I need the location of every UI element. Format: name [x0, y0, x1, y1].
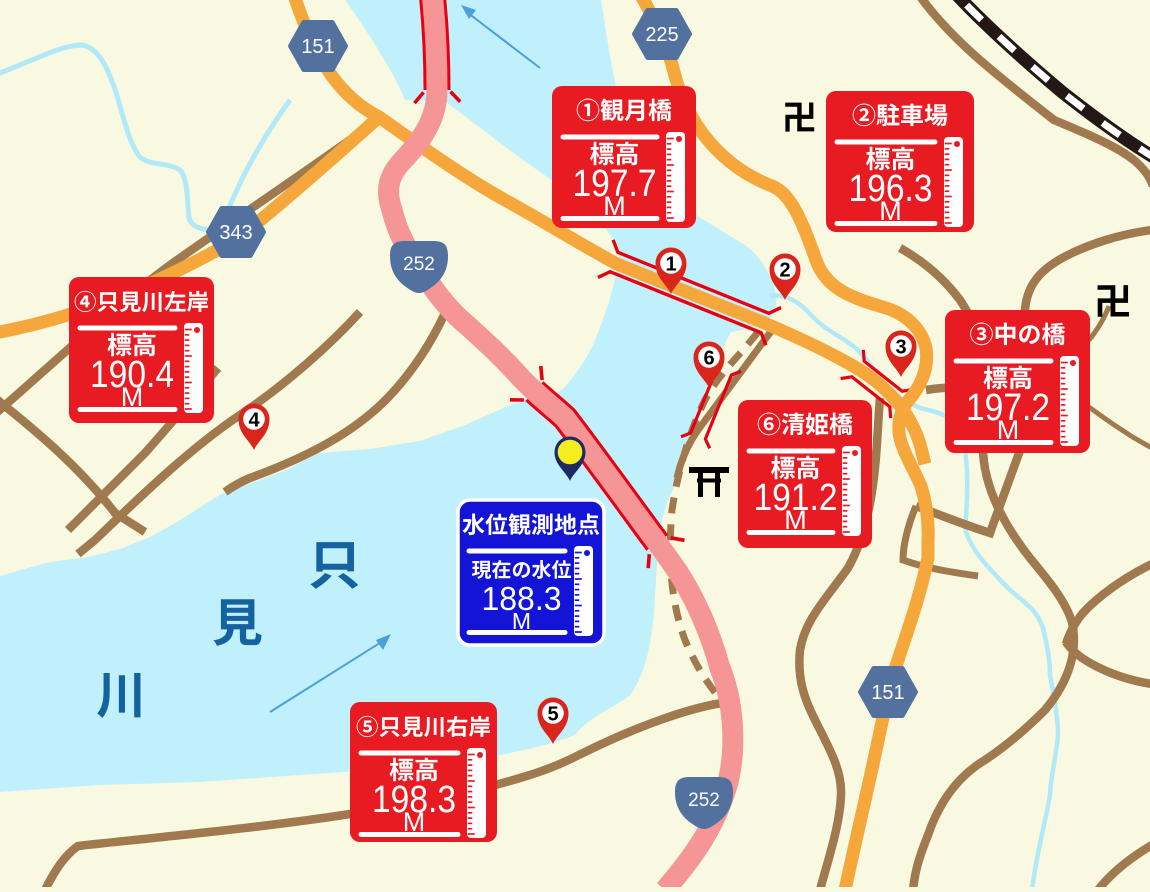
svg-text:2: 2: [779, 260, 790, 282]
svg-text:252: 252: [688, 790, 720, 811]
svg-text:6: 6: [703, 348, 714, 370]
svg-text:3: 3: [895, 337, 906, 359]
svg-text:151: 151: [871, 682, 904, 704]
svg-text:151: 151: [301, 36, 334, 58]
svg-text:343: 343: [219, 222, 252, 244]
svg-text:252: 252: [403, 254, 435, 275]
svg-text:1: 1: [665, 254, 676, 276]
svg-text:5: 5: [547, 704, 558, 726]
svg-text:4: 4: [248, 410, 260, 432]
svg-text:225: 225: [645, 24, 678, 46]
